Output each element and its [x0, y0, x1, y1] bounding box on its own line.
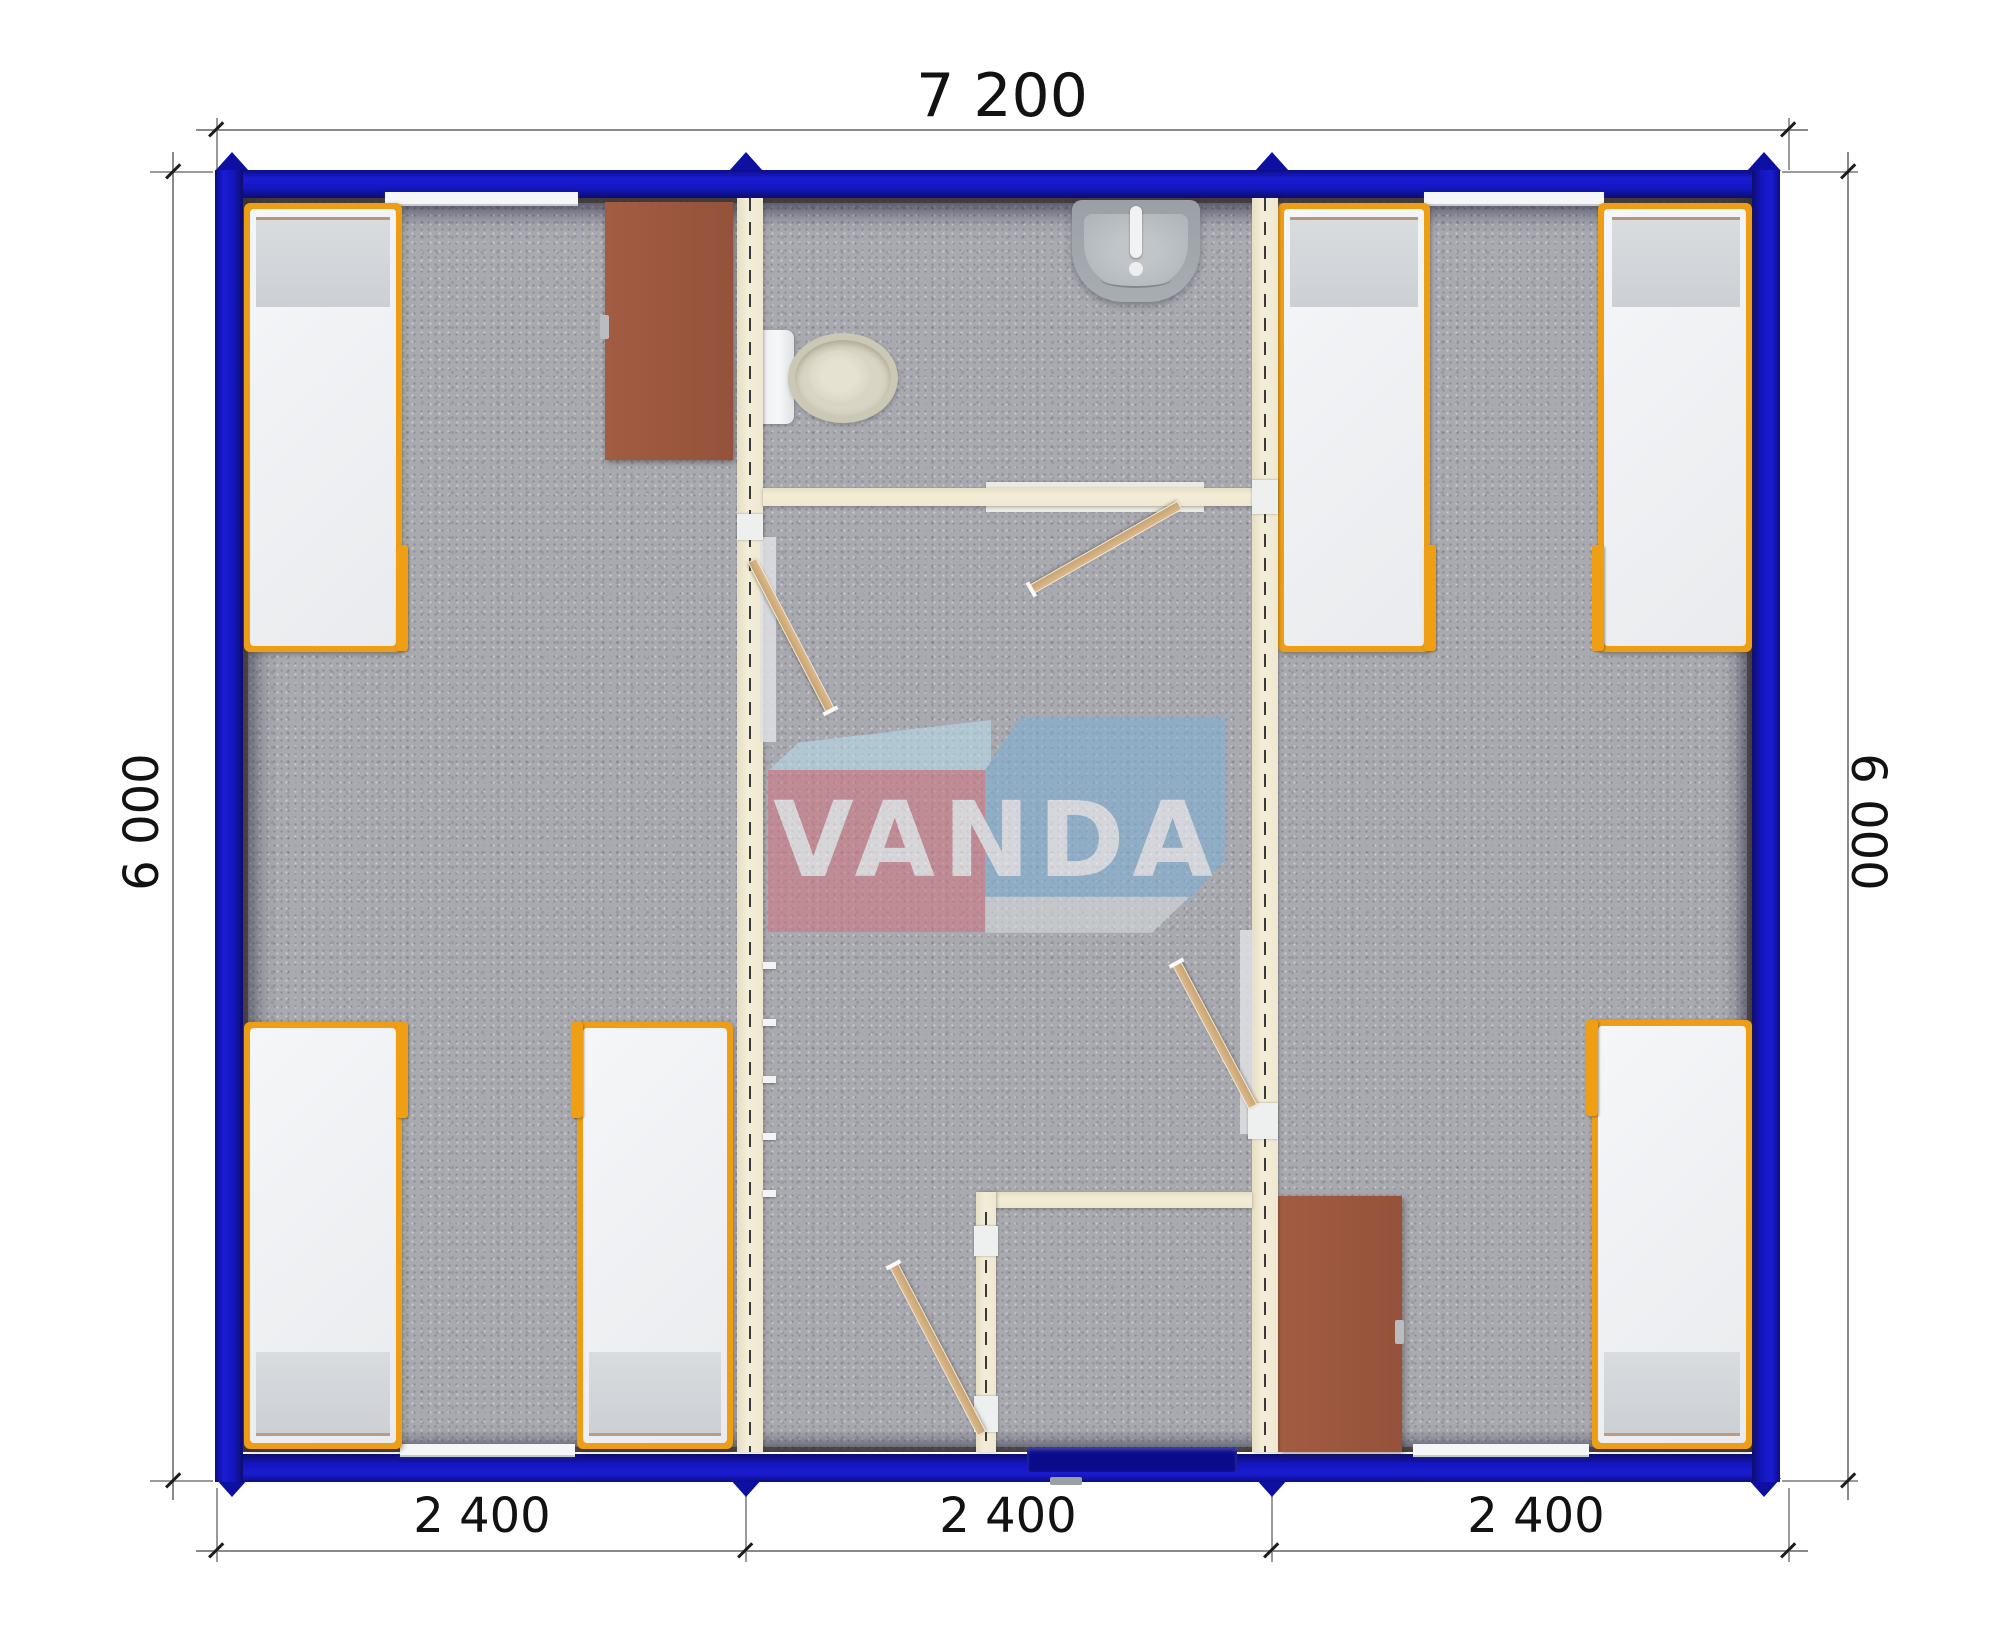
vanda-watermark: VANDA — [762, 700, 1232, 940]
door-jamb — [974, 1226, 998, 1256]
entrance-door-handle — [1050, 1477, 1082, 1485]
window-bottom-right-module — [1413, 1444, 1589, 1457]
pillow — [1612, 217, 1740, 307]
floor-plan-canvas: 7 200 2 400 2 400 2 400 6 000 6 000 VAND… — [0, 0, 2000, 1648]
logo-top-face — [762, 720, 991, 770]
bed-rail — [396, 545, 408, 651]
exterior-wall-bottom — [215, 1454, 1780, 1482]
dimension-label-depth-right: 6 000 — [1840, 753, 1896, 890]
extension-line — [150, 171, 213, 173]
partition-wall-vestibule-top — [984, 1192, 1252, 1208]
window-top-right-module — [1424, 192, 1604, 206]
exterior-wall-left — [215, 170, 243, 1482]
pillow — [1604, 1352, 1740, 1436]
toilet-bowl-inner — [809, 350, 869, 402]
bed — [244, 203, 402, 652]
coat-hook — [763, 962, 776, 969]
dimension-label-module-1: 2 400 — [413, 1488, 550, 1544]
container-lug — [1747, 152, 1781, 171]
bed — [1592, 1020, 1752, 1449]
bed-rail — [1586, 1020, 1598, 1116]
desk — [1278, 1196, 1402, 1452]
bed-rail — [1592, 545, 1604, 651]
pillow — [1290, 217, 1418, 307]
coat-hook — [763, 1133, 776, 1140]
desk-handle — [600, 315, 609, 339]
wall-centerline — [1264, 198, 1266, 1452]
dimension-label-total-width: 7 200 — [916, 61, 1088, 131]
door-jamb — [1248, 1103, 1278, 1139]
dimension-label-module-2: 2 400 — [939, 1488, 1076, 1544]
bed-rail — [396, 1022, 408, 1118]
bed-rail — [1424, 545, 1436, 651]
entrance-door — [1027, 1448, 1237, 1472]
toilet-bowl — [788, 333, 898, 423]
dimension-label-depth-left: 6 000 — [114, 753, 170, 890]
container-lug — [215, 152, 249, 171]
bed — [1278, 203, 1430, 652]
desk-handle — [1395, 1320, 1404, 1344]
dimension-line-bottom — [196, 1550, 1808, 1552]
container-lug — [1255, 152, 1289, 171]
logo-text: VANDA — [762, 788, 1232, 892]
exterior-wall-right — [1752, 170, 1780, 1482]
door-reveal — [760, 537, 776, 742]
bed-rail — [571, 1022, 583, 1118]
sink-overflow-line — [1100, 270, 1172, 288]
coat-hook — [763, 1019, 776, 1026]
coat-hook — [763, 1190, 776, 1197]
bed — [1598, 203, 1752, 652]
desk — [605, 202, 733, 460]
pillow — [256, 1352, 390, 1436]
sink-faucet — [1130, 206, 1142, 258]
extension-line — [150, 1480, 213, 1482]
dimension-label-module-3: 2 400 — [1467, 1488, 1604, 1544]
pillow — [256, 217, 390, 307]
pillow — [589, 1352, 721, 1436]
bed — [244, 1022, 402, 1449]
window-bottom-left-module — [400, 1444, 575, 1457]
coat-hook — [763, 1076, 776, 1083]
bed — [577, 1022, 733, 1449]
dimension-line-left — [172, 152, 174, 1500]
wall-centerline — [749, 198, 751, 1452]
container-lug — [729, 152, 763, 171]
door-jamb — [737, 514, 763, 540]
sink — [1072, 200, 1200, 302]
wall-joint — [1252, 480, 1278, 514]
window-top-left-module — [385, 192, 578, 206]
